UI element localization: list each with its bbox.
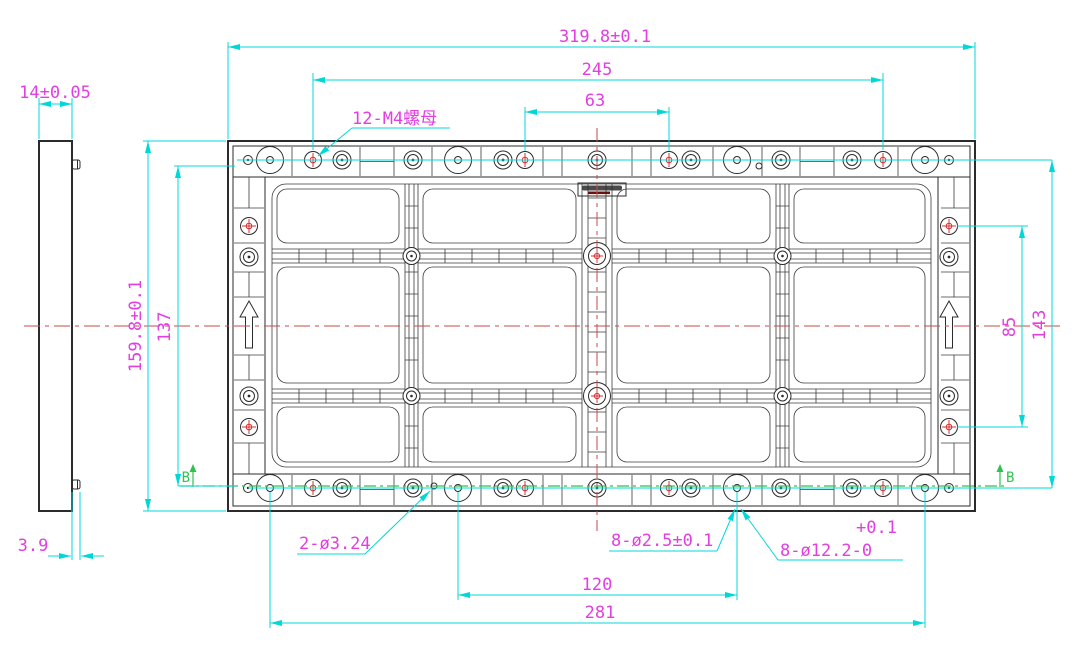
small-hole	[756, 163, 762, 169]
cell	[794, 267, 925, 383]
callout-pin-holes: 8-ø2.5±0.1	[609, 509, 735, 551]
dim-text: 319.8±0.1	[559, 27, 651, 47]
callout-text: 12-M4螺母	[352, 109, 437, 129]
cell	[617, 267, 770, 383]
dim-bottom-inner-span: 120	[458, 575, 737, 595]
dim-text: 3.9	[18, 536, 49, 556]
dim-bolt-span-width: 245	[313, 60, 883, 80]
dim-center-hole-span: 63	[525, 91, 669, 112]
brand-logo	[578, 183, 626, 196]
cell	[794, 189, 925, 243]
dim-side-outer-span: 143	[1030, 160, 1052, 488]
dim-panel-thickness: 14±0.05	[19, 83, 91, 104]
m4-nut	[941, 419, 958, 436]
m4-nut	[241, 218, 258, 235]
leader-line	[365, 491, 430, 554]
cad-drawing-page: B B 319.8±0.1 245 63 159.8±0.1	[0, 0, 1084, 660]
dim-text: 137	[155, 312, 175, 343]
section-label-right: B	[1006, 470, 1014, 486]
cell	[617, 407, 770, 462]
rib-boss	[774, 248, 791, 265]
insert-hole	[940, 387, 958, 405]
centerlines	[24, 128, 1062, 531]
cell	[423, 407, 576, 462]
insert-hole	[940, 248, 958, 266]
cell	[794, 407, 925, 462]
leader-line	[741, 509, 778, 560]
rib-boss	[403, 248, 420, 265]
cell	[423, 267, 576, 383]
rib-boss	[403, 388, 420, 405]
callout-counterbore: +0.1 8-ø12.2-0	[741, 509, 903, 561]
leader-line	[717, 509, 735, 551]
insert-hole	[240, 387, 258, 405]
dim-overall-width: 319.8±0.1	[228, 27, 975, 47]
callout-text: 8-ø12.2-0	[780, 541, 872, 561]
section-label-left: B	[182, 470, 190, 486]
dim-text: 63	[585, 91, 605, 111]
callout-small-holes: 2-ø3.24	[297, 491, 430, 554]
section-arrowhead-right-icon	[997, 464, 1004, 472]
callout-text: 8-ø2.5±0.1	[611, 531, 713, 551]
m4-nut	[941, 218, 958, 235]
callout-tolerance-text: +0.1	[856, 518, 897, 538]
bottom-stud	[72, 480, 80, 489]
rib-boss	[774, 388, 791, 405]
cell	[277, 189, 399, 243]
top-stud	[72, 160, 80, 169]
dim-text: 159.8±0.1	[126, 280, 146, 372]
dim-bottom-outer-span: 281	[270, 603, 925, 623]
extension-lines	[39, 42, 1052, 628]
cell	[277, 407, 399, 462]
dim-inner-height: 137	[155, 166, 178, 486]
orientation-arrow-icon	[240, 301, 258, 348]
dim-text: 281	[585, 603, 616, 623]
engineering-drawing: B B 319.8±0.1 245 63 159.8±0.1	[0, 0, 1084, 660]
cell	[423, 189, 576, 243]
section-arrowhead-left-icon	[190, 464, 197, 472]
dim-text: 120	[582, 575, 613, 595]
orientation-arrow-icon	[940, 301, 958, 348]
insert-hole	[240, 248, 258, 266]
dim-text: 14±0.05	[19, 83, 91, 103]
dim-text: 143	[1030, 310, 1050, 341]
callout-text: 2-ø3.24	[299, 534, 371, 554]
cell	[617, 189, 770, 243]
dim-stud-protrusion: 3.9	[18, 536, 104, 556]
cell	[277, 267, 399, 383]
dim-text: 245	[582, 60, 613, 80]
dim-side-hole-span: 85	[1000, 226, 1022, 427]
dim-overall-height: 159.8±0.1	[126, 141, 148, 511]
m4-nut	[241, 419, 258, 436]
dim-text: 85	[1000, 317, 1020, 337]
callout-m4-nuts: 12-M4螺母	[318, 109, 450, 156]
